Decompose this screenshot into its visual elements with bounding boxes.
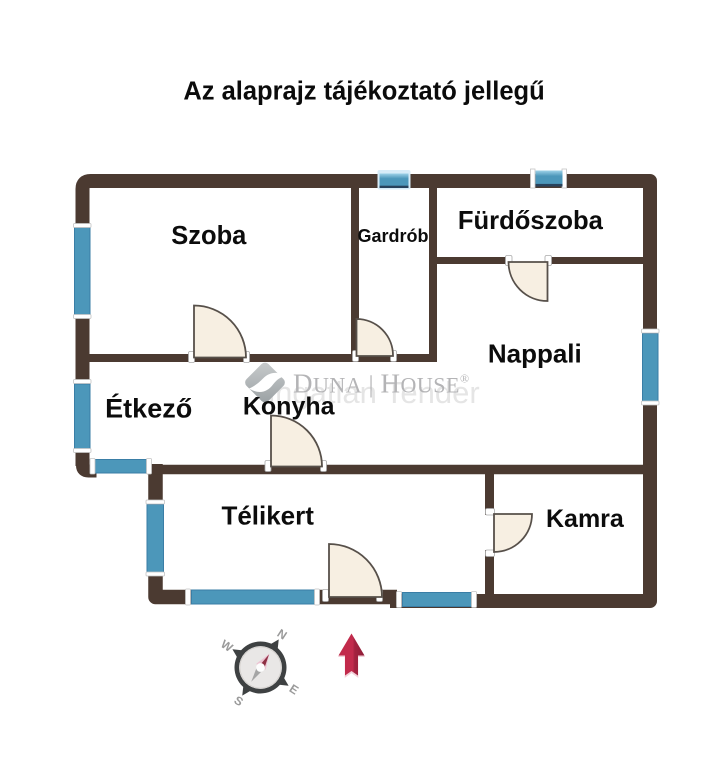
svg-text:Konyha: Konyha (243, 393, 336, 421)
svg-text:Gardrób: Gardrób (357, 226, 428, 246)
svg-text:Télikert: Télikert (221, 501, 314, 531)
svg-text:Az alaprajz tájékoztató jelleg: Az alaprajz tájékoztató jellegű (183, 78, 544, 106)
svg-text:Nappali: Nappali (488, 339, 582, 369)
svg-text:Szoba: Szoba (171, 222, 247, 250)
svg-text:Étkező: Étkező (105, 392, 192, 423)
svg-text:Fürdőszoba: Fürdőszoba (458, 207, 604, 235)
svg-text:Kamra: Kamra (546, 505, 625, 533)
